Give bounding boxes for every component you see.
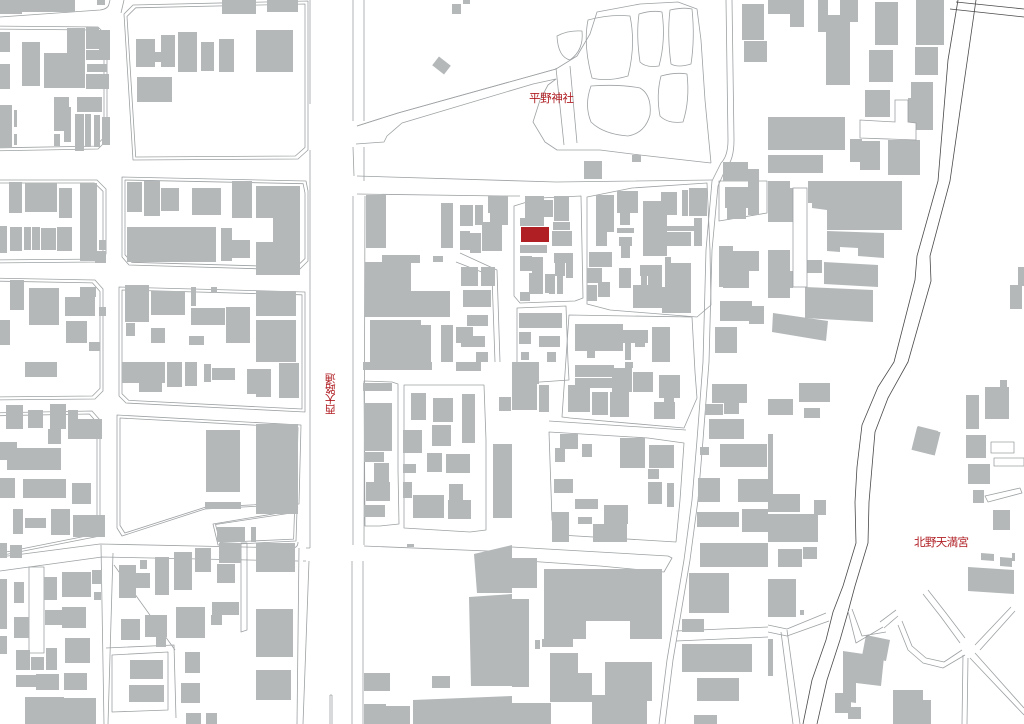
svg-text:北野天満宮: 北野天満宮 bbox=[914, 535, 969, 549]
svg-text:平野神社: 平野神社 bbox=[529, 91, 575, 105]
svg-text:通: 通 bbox=[325, 371, 336, 384]
